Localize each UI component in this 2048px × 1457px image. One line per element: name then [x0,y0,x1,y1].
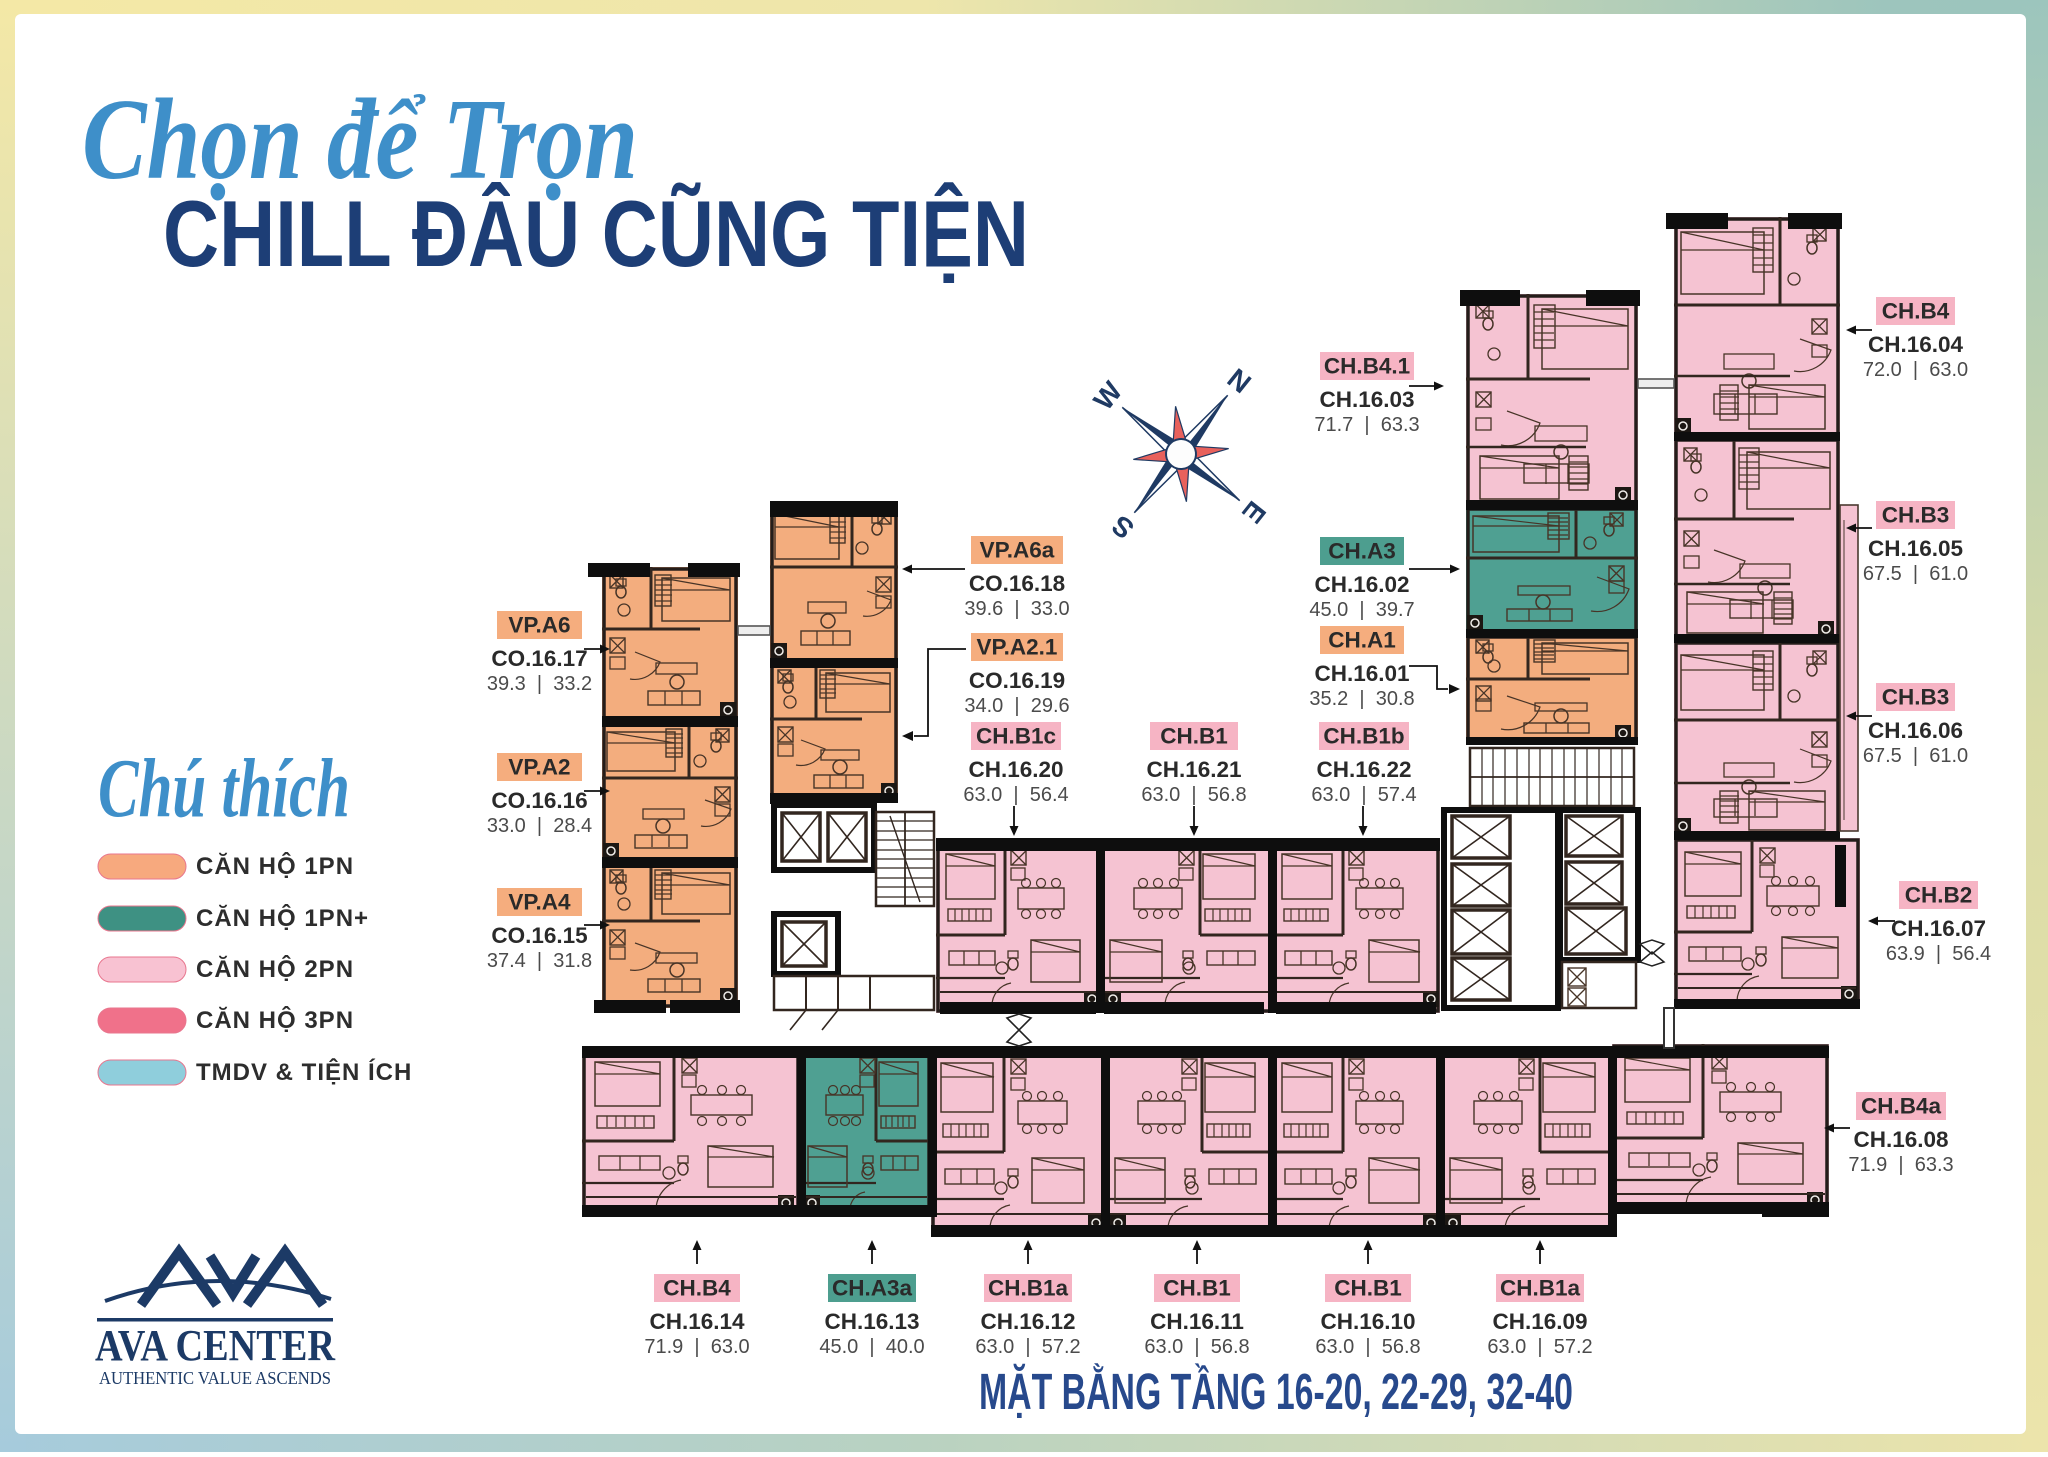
svg-text:CH.B2: CH.B2 [1905,883,1973,908]
svg-text:CĂN HỘ 2PN: CĂN HỘ 2PN [196,955,354,983]
svg-text:CH.16.08: CH.16.08 [1853,1127,1948,1152]
svg-text:CH.B4: CH.B4 [1882,299,1950,324]
svg-text:63.0 | 57.2: 63.0 | 57.2 [975,1336,1080,1358]
svg-text:CH.16.20: CH.16.20 [968,757,1063,782]
svg-text:CH.16.04: CH.16.04 [1868,332,1964,357]
svg-text:CĂN HỘ 3PN: CĂN HỘ 3PN [196,1006,354,1034]
svg-text:CO.16.17: CO.16.17 [491,646,587,671]
svg-text:CH.16.11: CH.16.11 [1150,1309,1244,1334]
svg-text:CH.A3a: CH.A3a [832,1276,913,1301]
svg-text:CH.16.10: CH.16.10 [1320,1309,1415,1334]
svg-text:CH.B1: CH.B1 [1163,1276,1231,1301]
svg-text:71.9 | 63.3: 71.9 | 63.3 [1848,1154,1953,1176]
svg-text:CH.16.05: CH.16.05 [1868,536,1963,561]
svg-text:63.0 | 56.8: 63.0 | 56.8 [1141,784,1246,806]
svg-text:CO.16.16: CO.16.16 [491,788,587,813]
svg-text:CH.A1: CH.A1 [1328,628,1396,653]
svg-text:CH.A3: CH.A3 [1328,539,1396,564]
svg-text:CH.B1: CH.B1 [1160,724,1228,749]
svg-text:MẶT BẰNG TẦNG 16-20, 22-29, 32: MẶT BẰNG TẦNG 16-20, 22-29, 32-40 [979,1362,1573,1420]
svg-text:35.2 | 30.8: 35.2 | 30.8 [1309,688,1414,710]
svg-text:71.9 | 63.0: 71.9 | 63.0 [644,1336,749,1358]
svg-text:63.0 | 56.4: 63.0 | 56.4 [963,784,1068,806]
svg-text:34.0 | 29.6: 34.0 | 29.6 [964,695,1069,717]
svg-text:63.0 | 56.8: 63.0 | 56.8 [1315,1336,1420,1358]
svg-text:71.7 | 63.3: 71.7 | 63.3 [1314,414,1419,436]
svg-text:CH.16.02: CH.16.02 [1314,572,1409,597]
svg-text:CH.B4a: CH.B4a [1861,1094,1942,1119]
svg-text:CO.16.15: CO.16.15 [491,923,587,948]
svg-text:45.0 | 40.0: 45.0 | 40.0 [819,1336,924,1358]
svg-text:CH.B3: CH.B3 [1882,685,1950,710]
svg-text:CH.16.06: CH.16.06 [1868,718,1963,743]
svg-text:AVA CENTER: AVA CENTER [95,1321,336,1370]
svg-text:CH.16.14: CH.16.14 [649,1309,745,1334]
svg-text:63.9 | 56.4: 63.9 | 56.4 [1886,943,1991,965]
svg-text:39.3 | 33.2: 39.3 | 33.2 [487,673,592,695]
svg-text:CO.16.18: CO.16.18 [969,571,1065,596]
svg-text:CHILL ĐÂU CŨNG TIỆN: CHILL ĐÂU CŨNG TIỆN [163,180,1029,286]
svg-text:CH.16.07: CH.16.07 [1891,916,1986,941]
svg-text:CO.16.19: CO.16.19 [969,668,1065,693]
svg-text:CH.16.13: CH.16.13 [824,1309,919,1334]
svg-text:37.4 | 31.8: 37.4 | 31.8 [487,950,592,972]
svg-text:67.5 | 61.0: 67.5 | 61.0 [1863,745,1968,767]
svg-text:CH.16.21: CH.16.21 [1146,757,1241,782]
svg-text:67.5 | 61.0: 67.5 | 61.0 [1863,563,1968,585]
svg-text:VP.A6a: VP.A6a [980,538,1055,563]
svg-text:CH.16.22: CH.16.22 [1316,757,1411,782]
svg-text:CH.B4.1: CH.B4.1 [1324,354,1410,379]
svg-text:CH.16.09: CH.16.09 [1492,1309,1587,1334]
svg-text:CH.16.03: CH.16.03 [1319,387,1414,412]
svg-text:CH.B1a: CH.B1a [988,1276,1069,1301]
svg-text:63.0 | 57.4: 63.0 | 57.4 [1311,784,1416,806]
svg-text:VP.A2: VP.A2 [508,755,570,780]
svg-text:VP.A4: VP.A4 [508,890,571,915]
svg-text:63.0 | 56.8: 63.0 | 56.8 [1144,1336,1249,1358]
svg-text:Chú thích: Chú thích [98,742,350,835]
svg-text:CH.B1a: CH.B1a [1500,1276,1581,1301]
svg-text:33.0 | 28.4: 33.0 | 28.4 [487,815,592,837]
svg-text:CĂN HỘ 1PN+: CĂN HỘ 1PN+ [196,904,369,932]
svg-text:CĂN HỘ 1PN: CĂN HỘ 1PN [196,852,354,880]
svg-text:CH.B1: CH.B1 [1334,1276,1402,1301]
svg-text:CH.B3: CH.B3 [1882,503,1950,528]
svg-text:VP.A2.1: VP.A2.1 [977,635,1058,660]
svg-text:CH.16.12: CH.16.12 [980,1309,1075,1334]
svg-text:63.0 | 57.2: 63.0 | 57.2 [1487,1336,1592,1358]
svg-text:72.0 | 63.0: 72.0 | 63.0 [1863,359,1968,381]
svg-text:AUTHENTIC VALUE ASCENDS: AUTHENTIC VALUE ASCENDS [99,1368,331,1388]
svg-text:CH.B1c: CH.B1c [976,724,1056,749]
svg-text:CH.B1b: CH.B1b [1323,724,1404,749]
svg-text:VP.A6: VP.A6 [508,613,570,638]
svg-text:TMDV & TIỆN ÍCH: TMDV & TIỆN ÍCH [196,1058,412,1086]
svg-text:45.0 | 39.7: 45.0 | 39.7 [1309,599,1414,621]
svg-text:39.6 | 33.0: 39.6 | 33.0 [964,598,1069,620]
svg-text:CH.B4: CH.B4 [663,1276,731,1301]
svg-text:CH.16.01: CH.16.01 [1314,661,1409,686]
